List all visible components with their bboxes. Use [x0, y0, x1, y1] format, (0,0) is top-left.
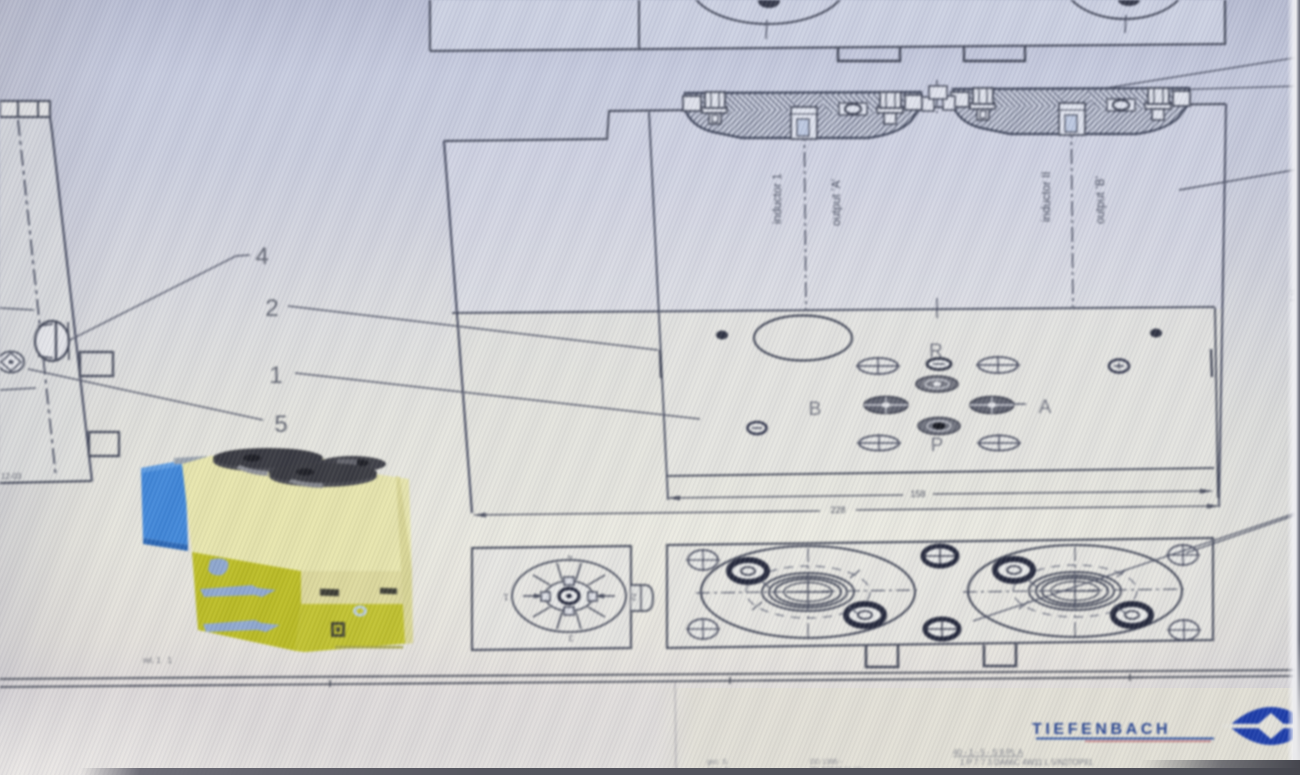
svg-text:rel. 1 1: rel. 1 1: [143, 656, 172, 665]
svg-text:3: 3: [568, 633, 573, 643]
svg-text:DD 1395 -: DD 1395 -: [810, 759, 843, 766]
svg-text:12-03: 12-03: [1, 472, 22, 481]
svg-text:gez. S.: gez. S.: [707, 759, 729, 766]
svg-text:P: P: [931, 435, 944, 456]
svg-text:2: 2: [265, 295, 278, 322]
svg-text:5: 5: [274, 411, 287, 438]
svg-text:A: A: [1039, 397, 1052, 418]
svg-text:inductor II: inductor II: [1041, 172, 1053, 223]
svg-text:158: 158: [910, 489, 925, 499]
svg-text:4: 4: [255, 243, 268, 270]
svg-text:1: 1: [503, 592, 508, 602]
svg-text:1: 1: [269, 362, 282, 389]
svg-text:228: 228: [830, 505, 845, 515]
svg-text:inductor 1: inductor 1: [772, 173, 784, 224]
svg-text:output ’B’: output ’B’: [1095, 176, 1107, 224]
svg-text:output ’A’: output ’A’: [831, 179, 843, 226]
svg-text:2: 2: [631, 592, 636, 602]
svg-text:B: B: [809, 399, 822, 420]
svg-text:4: 4: [567, 553, 572, 563]
svg-text:40 - 1 - 5 - S 9 PL A: 40 - 1 - 5 - S 9 PL A: [953, 748, 1024, 757]
svg-text:TIEFENBACH: TIEFENBACH: [1032, 721, 1171, 738]
svg-text:1 P 7 7 3 DA66C 4W11 L 5/N2: 1 P 7 7 3 DA66C 4W11 L 5/N27OP91: [960, 758, 1093, 767]
